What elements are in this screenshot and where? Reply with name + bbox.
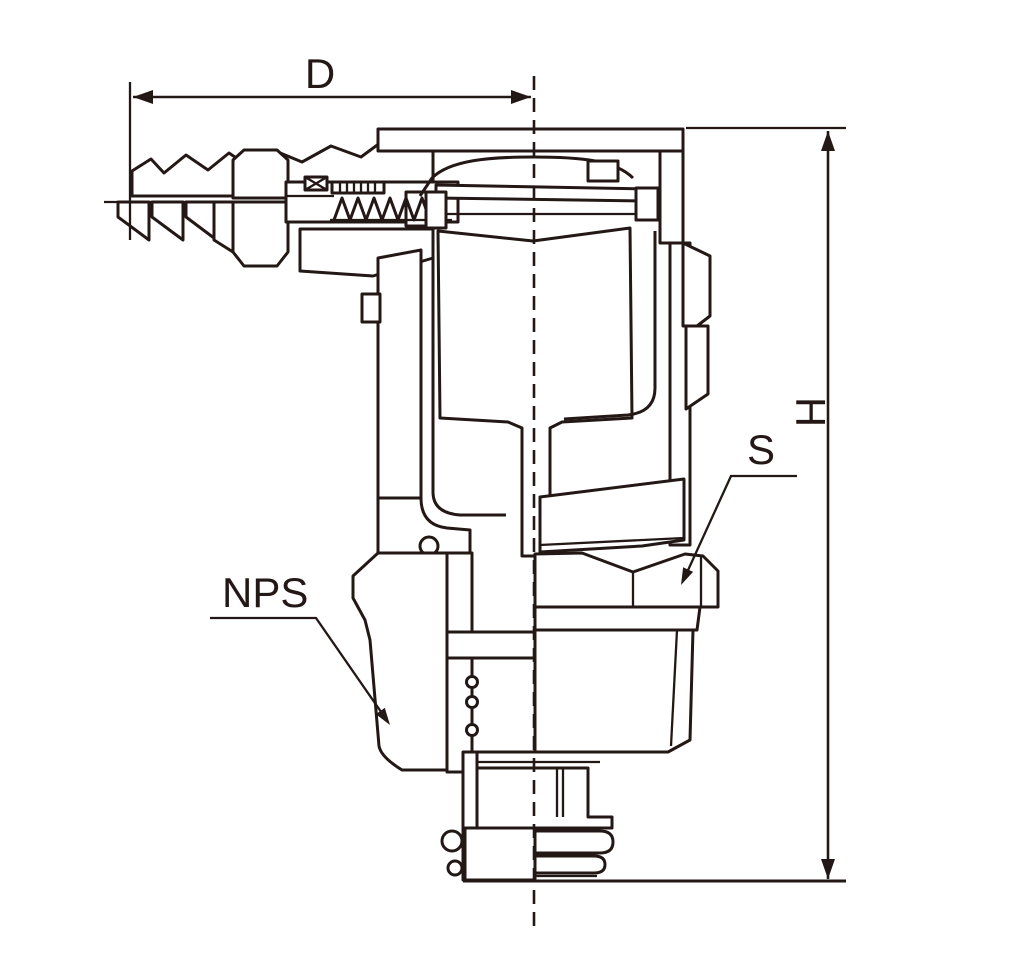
knurled-nut-section [233, 150, 288, 198]
bore-channel [449, 634, 535, 656]
inner-sleeve-upper [447, 553, 472, 632]
barb-tooth [186, 202, 214, 238]
lower-cup-body [535, 630, 693, 752]
dim-h-label: H [787, 397, 834, 427]
lever-plate [436, 185, 648, 201]
h-arrow-top [821, 131, 835, 151]
thread-relief-ring [467, 725, 478, 736]
cap-right-wall [660, 151, 683, 243]
nps-leader-line [210, 618, 386, 719]
right-collar [683, 243, 710, 326]
dim-d-label: D [305, 50, 335, 97]
hex-flange [535, 607, 700, 630]
h-arrow-bottom [821, 859, 835, 879]
valve-body-drawing [104, 129, 718, 880]
bottom-plug-section [465, 828, 535, 880]
dome-seal-crosshatch [588, 161, 618, 181]
top-cap-band [378, 129, 683, 151]
valve-cross-section-figure: D H S NPS [0, 0, 1022, 975]
nps-label: NPS [222, 569, 308, 616]
oring-section-1 [442, 831, 462, 851]
s-label: S [747, 426, 775, 473]
right-thread-tab [686, 326, 708, 409]
nps-thread-body [353, 553, 447, 770]
d-arrow-left [133, 90, 153, 104]
side-port-boss [362, 294, 380, 322]
bottom-stub [477, 768, 612, 828]
barb-tooth [118, 202, 149, 240]
barb-shank [214, 202, 233, 252]
drawing-canvas: D H S NPS [0, 0, 1022, 975]
hex-nut [535, 553, 718, 607]
oring-section-2 [448, 861, 462, 875]
knurled-nut-exterior [233, 202, 288, 266]
d-arrow-right [511, 90, 531, 104]
barb-tooth [152, 202, 183, 240]
thread-relief-ring [467, 697, 478, 708]
lever-bracket-left [426, 192, 446, 228]
body-left-wall [378, 250, 421, 500]
lever-bracket-right [636, 188, 658, 220]
thread-relief-ring [467, 677, 478, 688]
